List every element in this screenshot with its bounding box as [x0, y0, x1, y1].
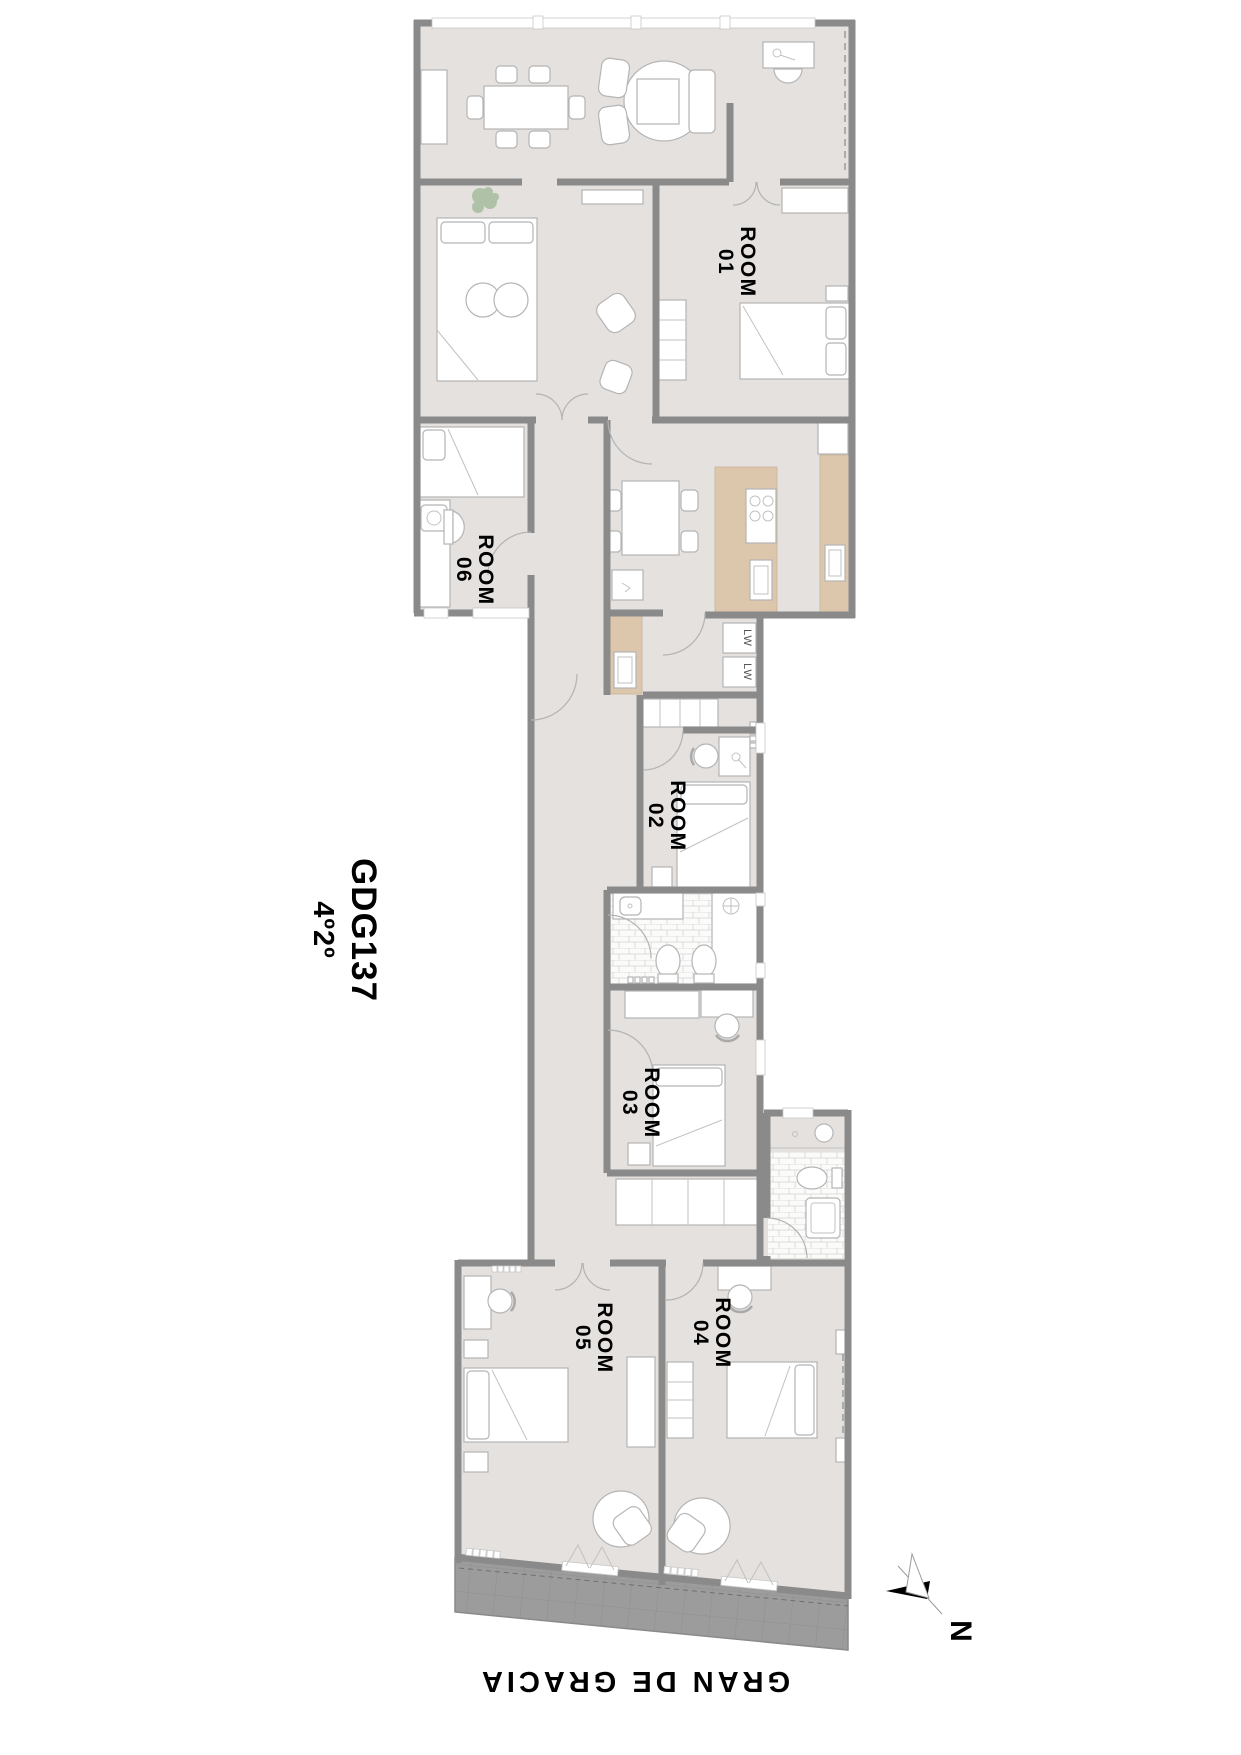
nightstand	[628, 1143, 650, 1165]
toilet	[797, 1167, 842, 1189]
svg-text:05: 05	[571, 1325, 594, 1351]
svg-text:LW: LW	[741, 663, 753, 681]
lightwell-window	[473, 608, 529, 618]
kitchen-table	[622, 481, 679, 555]
pillow	[681, 785, 747, 804]
floor-plan-page: ROOM 01 ROOM 02 ROOM 03 ROOM 04 ROOM 05 …	[0, 0, 1241, 1755]
svg-text:N: N	[944, 1620, 977, 1642]
chair-room03	[715, 1014, 739, 1038]
svg-text:ROOM: ROOM	[736, 226, 759, 297]
svg-text:03: 03	[618, 1090, 641, 1116]
pillow	[795, 1365, 814, 1435]
lightwell-window	[756, 723, 765, 753]
coffee-table	[637, 79, 679, 124]
plan-title: GDG137 4º2º	[307, 858, 383, 1002]
svg-text:LW: LW	[741, 629, 753, 647]
kitchen-counter	[820, 455, 850, 615]
door-gap-room06	[527, 533, 536, 575]
dresser-room03	[701, 989, 753, 1017]
washer-label-2: LW	[741, 663, 753, 681]
nightstand	[464, 1452, 488, 1472]
floor-corridor	[533, 421, 608, 1267]
lightwell-window	[756, 1040, 765, 1075]
desk-room05	[464, 1276, 491, 1329]
wardrobe	[640, 699, 718, 727]
fridge	[818, 422, 848, 454]
boiler	[612, 570, 643, 600]
nightstand	[826, 286, 848, 301]
chair-room02	[694, 744, 718, 768]
chair-room05	[488, 1289, 512, 1313]
pillow	[423, 430, 445, 460]
basin	[815, 1124, 833, 1142]
shelf-ticks-room05	[492, 1266, 521, 1272]
lightwell-window	[424, 608, 448, 618]
pillow	[467, 1371, 489, 1439]
svg-text:ROOM: ROOM	[711, 1297, 734, 1368]
svg-text:ROOM: ROOM	[666, 780, 689, 851]
pillow	[826, 307, 846, 339]
nightstand	[652, 867, 672, 887]
sideboard	[782, 188, 848, 213]
toilet-tank	[444, 510, 453, 544]
nightstand	[464, 1340, 488, 1358]
washer-label-1: LW	[741, 629, 753, 647]
shelf	[582, 190, 643, 204]
svg-text:ROOM: ROOM	[474, 534, 497, 605]
pillow	[656, 1068, 722, 1086]
pillow	[489, 222, 533, 243]
wardrobe-room05	[627, 1357, 655, 1447]
basin	[620, 897, 641, 915]
svg-text:06: 06	[452, 557, 475, 583]
desk-room02	[719, 737, 750, 776]
svg-text:ROOM: ROOM	[640, 1067, 663, 1138]
bathroom-window	[783, 1108, 813, 1118]
north-arrow-outline	[906, 1554, 929, 1598]
armchair	[597, 104, 630, 146]
pillow	[826, 343, 846, 375]
dining-table	[484, 86, 568, 129]
svg-text:04: 04	[689, 1320, 712, 1346]
svg-text:02: 02	[644, 803, 667, 829]
pillow	[441, 222, 485, 243]
bidet	[692, 945, 716, 983]
toilet	[656, 945, 680, 983]
svg-text:ROOM: ROOM	[593, 1302, 616, 1373]
sideboard	[421, 70, 447, 144]
window-band	[432, 18, 815, 28]
north-arrow: N	[886, 1554, 977, 1642]
street-name: GRAN DE GRACIA	[478, 1665, 790, 1697]
armchair	[597, 57, 630, 99]
shower	[712, 893, 757, 984]
desk-room03	[625, 991, 699, 1018]
sofa	[689, 70, 715, 133]
svg-text:01: 01	[714, 249, 737, 275]
svg-text:GRAN DE GRACIA: GRAN DE GRACIA	[478, 1665, 790, 1697]
unit-number: 4º2º	[307, 901, 339, 958]
sink	[421, 505, 447, 531]
console-table	[763, 42, 814, 68]
rug-circle	[494, 283, 528, 317]
floor-plan: ROOM 01 ROOM 02 ROOM 03 ROOM 04 ROOM 05 …	[0, 0, 1241, 1755]
project-code: GDG137	[344, 858, 383, 1002]
